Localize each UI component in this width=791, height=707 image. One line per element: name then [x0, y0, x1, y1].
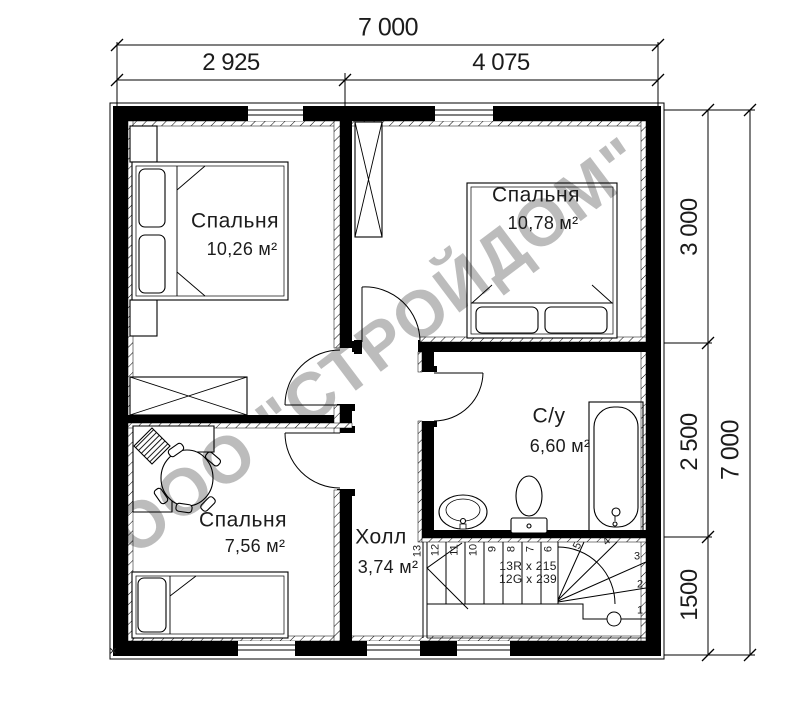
room-area-bedroom-top-left: 10,26 м²	[207, 240, 278, 258]
stair-newel-post	[607, 612, 621, 626]
stair-step-number: 2	[637, 580, 643, 591]
bathtub	[589, 402, 643, 532]
stair-step-number: 1	[637, 606, 643, 617]
floor-plan: ООО "СТРОЙДОМ" 7 000 2 925 4 075 3 000 2…	[0, 0, 791, 707]
stair-landing-edge	[558, 604, 646, 619]
nightstand	[130, 300, 157, 336]
room-area-bedroom-top-right: 10,78 м²	[508, 214, 579, 232]
stair-step-number: 11	[450, 544, 461, 555]
nightstand	[130, 126, 157, 162]
room-label-bathroom: С/у	[533, 406, 566, 427]
door-bathroom	[434, 373, 483, 421]
pillow	[139, 235, 165, 293]
dim-right-top-segment: 3 000	[678, 198, 702, 256]
room-area-hall: 3,74 м²	[358, 558, 419, 576]
stair-risers-note: 13R x 215	[499, 560, 556, 572]
dim-top-right-segment: 4 075	[472, 51, 530, 75]
stair-step-number: 3	[634, 552, 640, 563]
dim-right-bottom-segment: 1500	[678, 569, 702, 620]
stair-step-number: 7	[526, 546, 537, 552]
room-label-bedroom-top-right: Спальня	[492, 185, 580, 206]
stair-step-number: 12	[431, 544, 442, 556]
stair-step-number: 10	[469, 544, 480, 556]
stair-step-number: 6	[544, 546, 555, 552]
room-label-bedroom-bottom-left: Спальня	[199, 510, 287, 531]
stair-goings-note: 12G x 239	[499, 573, 557, 585]
stair-step-number: 9	[488, 546, 499, 552]
room-label-bedroom-top-left: Спальня	[191, 211, 279, 232]
bed-single-bottom-left	[132, 572, 288, 638]
pillow	[139, 169, 165, 227]
stair-step-number: 13	[413, 545, 424, 557]
room-area-bedroom-bottom-left: 7,56 м²	[225, 537, 286, 555]
pillow	[545, 307, 607, 333]
sink	[439, 495, 487, 529]
dim-top-left-segment: 2 925	[202, 51, 260, 75]
staircase	[423, 542, 646, 638]
stair-winders	[558, 542, 646, 602]
dim-right-total: 7 000	[719, 420, 744, 480]
pillow	[138, 578, 166, 632]
corner-marker: ✕	[109, 647, 117, 658]
stair-winder-arc	[558, 547, 615, 604]
dim-right-middle-segment: 2 500	[678, 413, 702, 471]
wardrobe-top-right	[355, 122, 382, 237]
stair-step-number: 8	[507, 546, 518, 552]
room-area-bathroom: 6,60 м²	[530, 437, 591, 455]
room-label-hall: Холл	[355, 527, 407, 548]
dim-top-total: 7 000	[358, 16, 418, 41]
toilet	[511, 476, 547, 533]
stair-left-edge	[423, 542, 427, 638]
